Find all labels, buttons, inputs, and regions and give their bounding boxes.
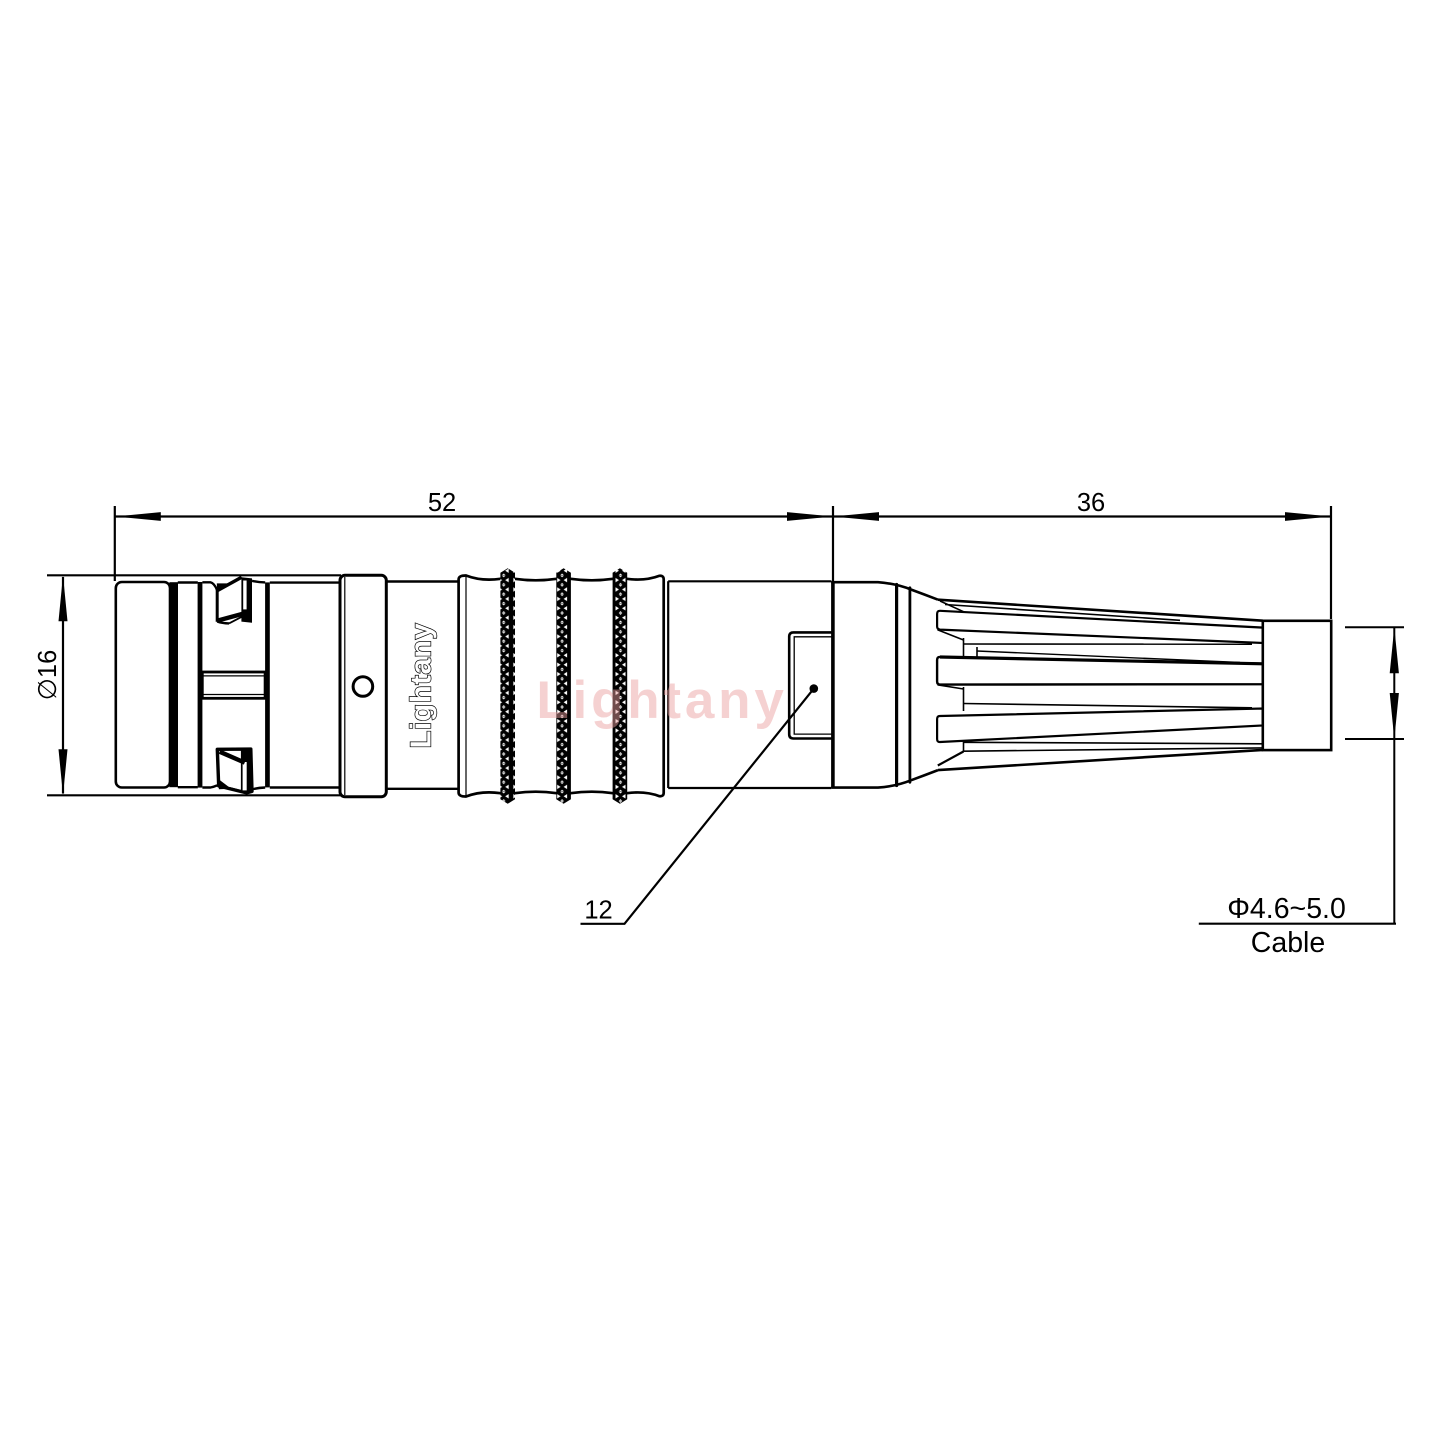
svg-text:∅16: ∅16 xyxy=(34,650,62,701)
svg-text:Cable: Cable xyxy=(1251,927,1325,959)
svg-text:12: 12 xyxy=(584,897,612,925)
svg-text:Φ4.6~5.0: Φ4.6~5.0 xyxy=(1227,893,1346,925)
svg-text:Lightany: Lightany xyxy=(406,623,438,749)
svg-text:36: 36 xyxy=(1077,489,1105,517)
svg-text:52: 52 xyxy=(428,489,456,517)
svg-text:Lightany: Lightany xyxy=(536,671,787,730)
